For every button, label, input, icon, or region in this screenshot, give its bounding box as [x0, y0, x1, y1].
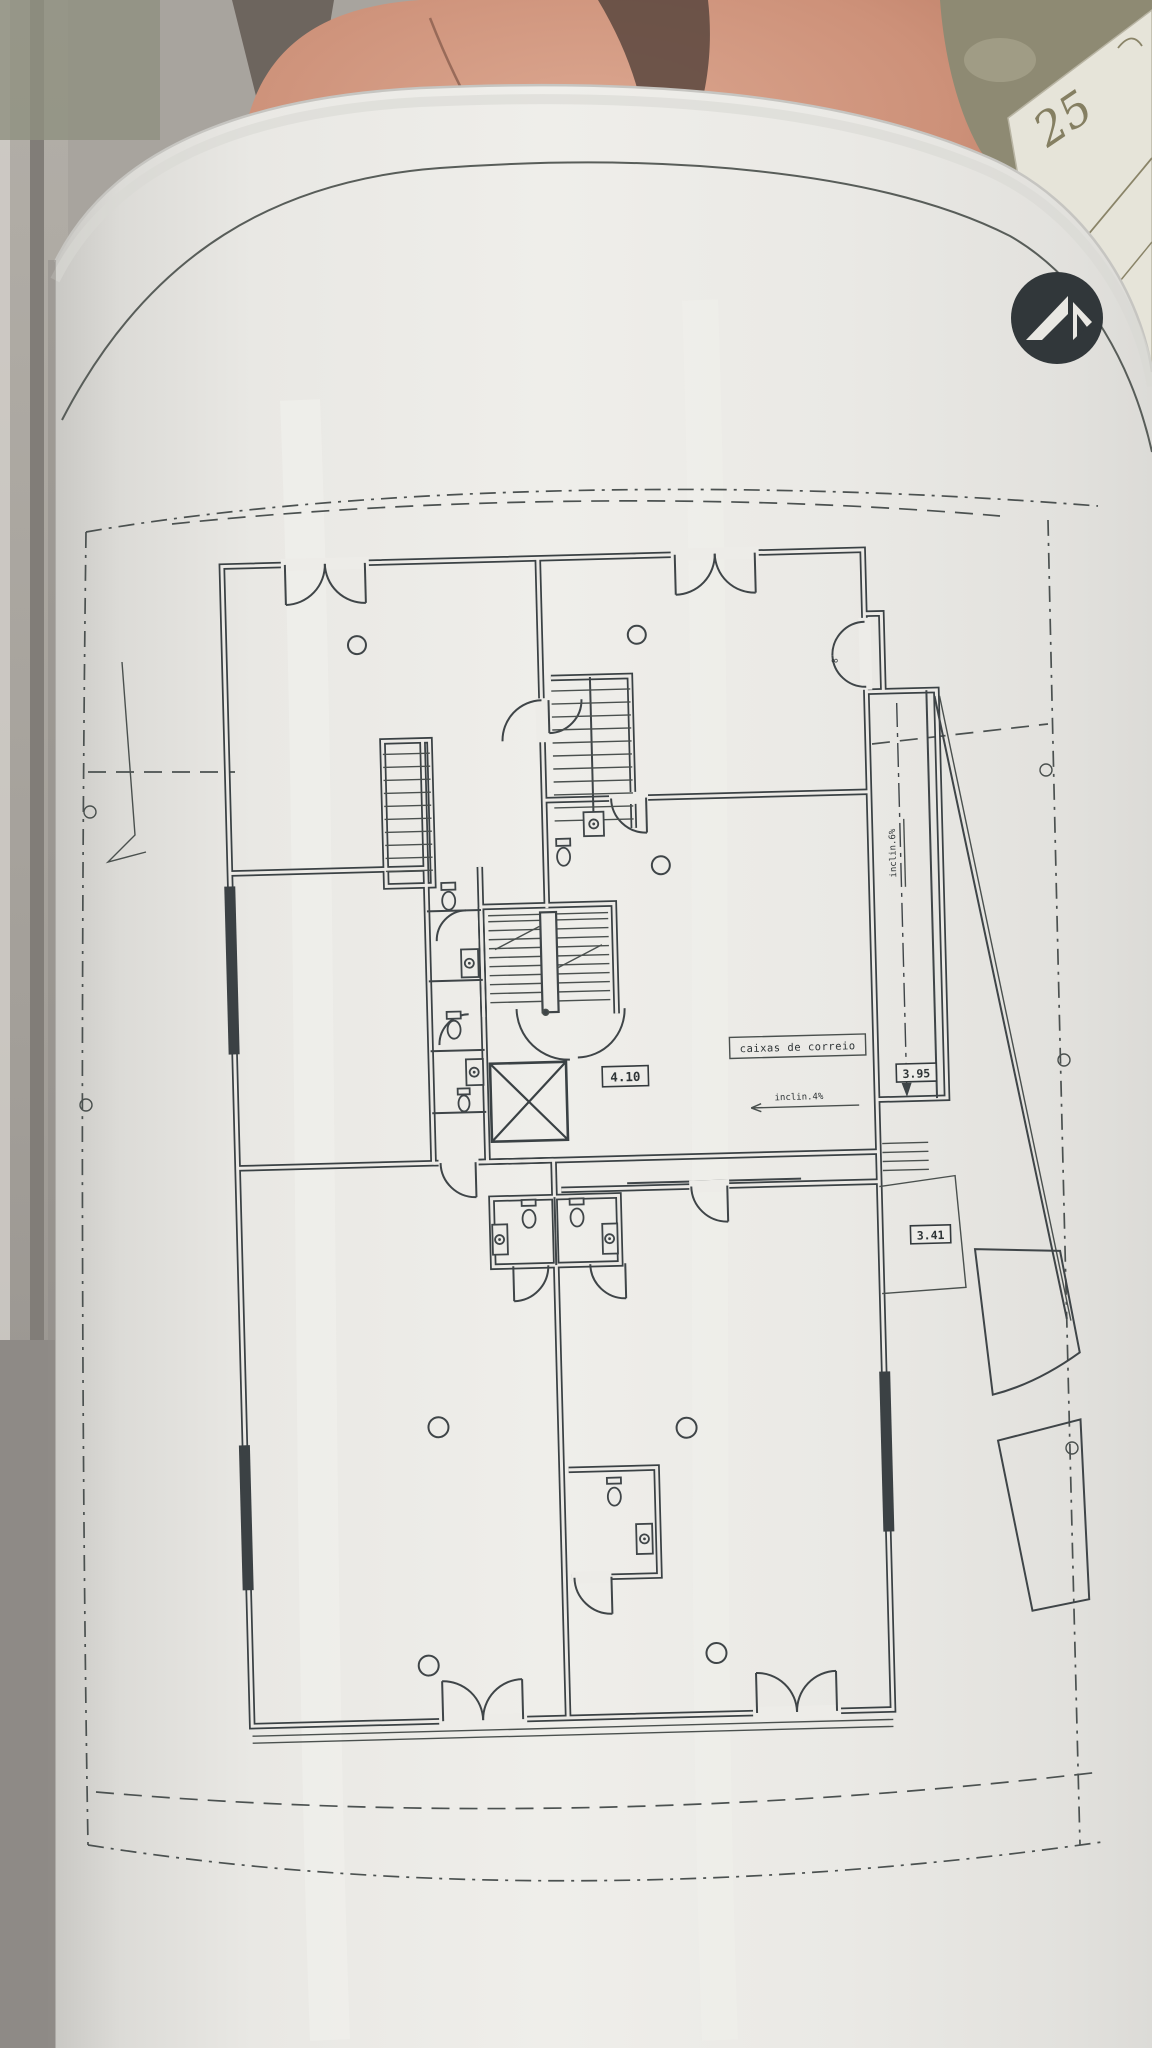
toilet-symbol [570, 1198, 585, 1226]
toilet-symbol [522, 1200, 537, 1228]
svg-text:3.95: 3.95 [902, 1066, 930, 1081]
svg-text:inclin.4%: inclin.4% [774, 1092, 824, 1103]
sink-symbol [466, 1059, 484, 1085]
entrance-mark-label: 8 [830, 658, 839, 663]
floor-plan-photo-svg: 25 [0, 0, 1152, 2048]
photo-of-floor-plan: 25 [0, 0, 1152, 2048]
toilet-symbol [447, 1012, 462, 1039]
svg-text:3.41: 3.41 [917, 1228, 945, 1243]
dimension-label-341: 3.41 [910, 1225, 950, 1244]
slope-label-ramp: inclin.6% [888, 828, 899, 878]
architect-logo [1011, 272, 1103, 364]
foliage-corner [0, 0, 160, 140]
toilet-symbol [441, 883, 456, 910]
dimension-label-395: 3.95 [896, 1063, 936, 1082]
sink-symbol [461, 949, 479, 977]
svg-text:4.10: 4.10 [610, 1069, 640, 1085]
sink-symbol [636, 1524, 653, 1554]
toilet-symbol [556, 839, 571, 866]
dimension-label-410: 4.10 [602, 1066, 649, 1087]
sink-symbol [492, 1224, 508, 1254]
paper-sheet [48, 85, 1152, 2048]
sink-symbol [583, 812, 604, 837]
toilet-symbol [458, 1088, 471, 1111]
sink-symbol [602, 1223, 618, 1253]
toilet-symbol [607, 1477, 622, 1505]
